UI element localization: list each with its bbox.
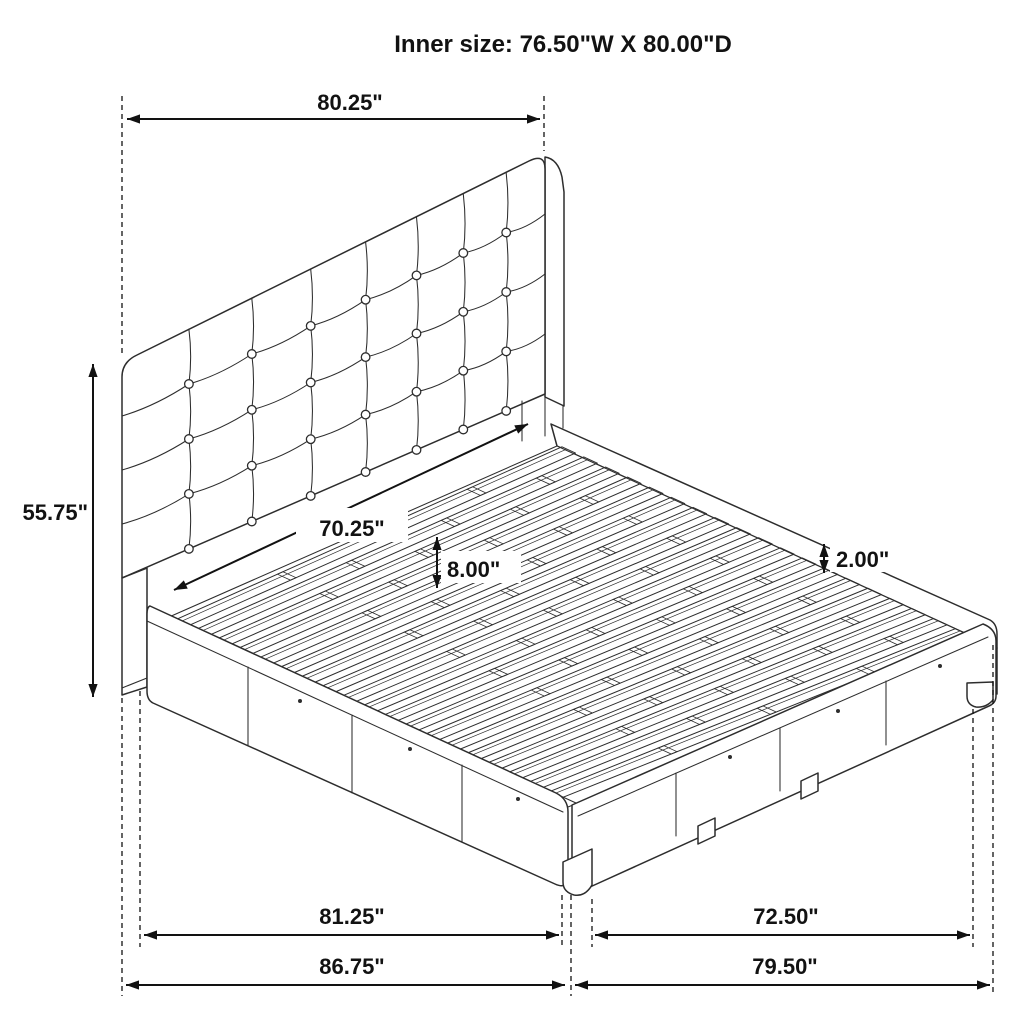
arrowhead [527,114,540,123]
dim-overall-depth [126,980,565,989]
tuft-button [502,228,511,237]
headboard-side-face [545,157,564,406]
tuft-button [306,492,315,501]
dim-headboard-width [127,114,540,123]
arrowhead [126,980,139,989]
arrowhead [977,980,990,989]
dim-label-platform-side-length: 81.25" [319,904,384,929]
dim-platform-side-length [144,930,559,939]
arrowhead [144,930,157,939]
tuft-button [459,366,468,375]
headboard-left-leg [122,568,147,695]
arrowhead [575,980,588,989]
panel-dot [298,699,302,703]
tuft-button [185,380,194,389]
tuft-button [248,461,257,470]
dim-overall-width [575,980,990,989]
tuft-button [248,350,257,359]
dim-label-overall-depth: 86.75" [319,954,384,979]
panel-dot [938,664,942,668]
dim-label-headboard-width: 80.25" [317,90,382,115]
bed-dimension-diagram: Inner size: 76.50"W X 80.00"D 80.25" 55.… [0,0,1024,1024]
tuft-button [412,446,421,455]
panel-dot [516,797,520,801]
dim-label-slat-spacing: 8.00" [447,557,500,582]
tuft-button [361,410,370,419]
tuft-button [361,468,370,477]
dim-label-headboard-inner-width: 70.25" [319,516,384,541]
arrowhead [514,424,528,434]
tuft-button [306,322,315,331]
tuft-button [459,425,468,434]
arrowhead [595,930,608,939]
tuft-button [185,545,194,554]
tuft-button [306,378,315,387]
dim-footboard-inner-width [595,930,970,939]
tuft-button [412,329,421,338]
tuft-button [248,517,257,526]
tuft-button [412,387,421,396]
tuft-button [361,295,370,304]
tuft-button [502,407,511,416]
dim-label-footboard-inner-width: 72.50" [753,904,818,929]
tuft-button [502,288,511,297]
diagram-page: Inner size: 76.50"W X 80.00"D 80.25" 55.… [0,0,1024,1024]
right-corner-leg [967,682,993,707]
tuft-button [459,308,468,317]
tuft-button [502,347,511,356]
tuft-button [412,271,421,280]
panel-dot [836,709,840,713]
arrowhead [957,930,970,939]
arrowhead [88,684,97,697]
tuft-button [248,406,257,415]
arrowhead [546,930,559,939]
arrowhead [174,580,188,590]
tuft-button [459,249,468,258]
arrowhead [552,980,565,989]
arrowhead [127,114,140,123]
panel-dot [408,747,412,751]
panel-dot [728,755,732,759]
dim-label-headboard-height: 55.75" [23,500,88,525]
tuft-button [185,435,194,444]
dim-label-overall-width: 79.50" [752,954,817,979]
dim-headboard-height [88,364,97,697]
page-title: Inner size: 76.50"W X 80.00"D [394,31,732,58]
tuft-button [185,490,194,499]
dim-label-rail-lip-height: 2.00" [836,547,889,572]
tuft-button [306,435,315,444]
arrowhead [88,364,97,377]
tuft-button [361,353,370,362]
